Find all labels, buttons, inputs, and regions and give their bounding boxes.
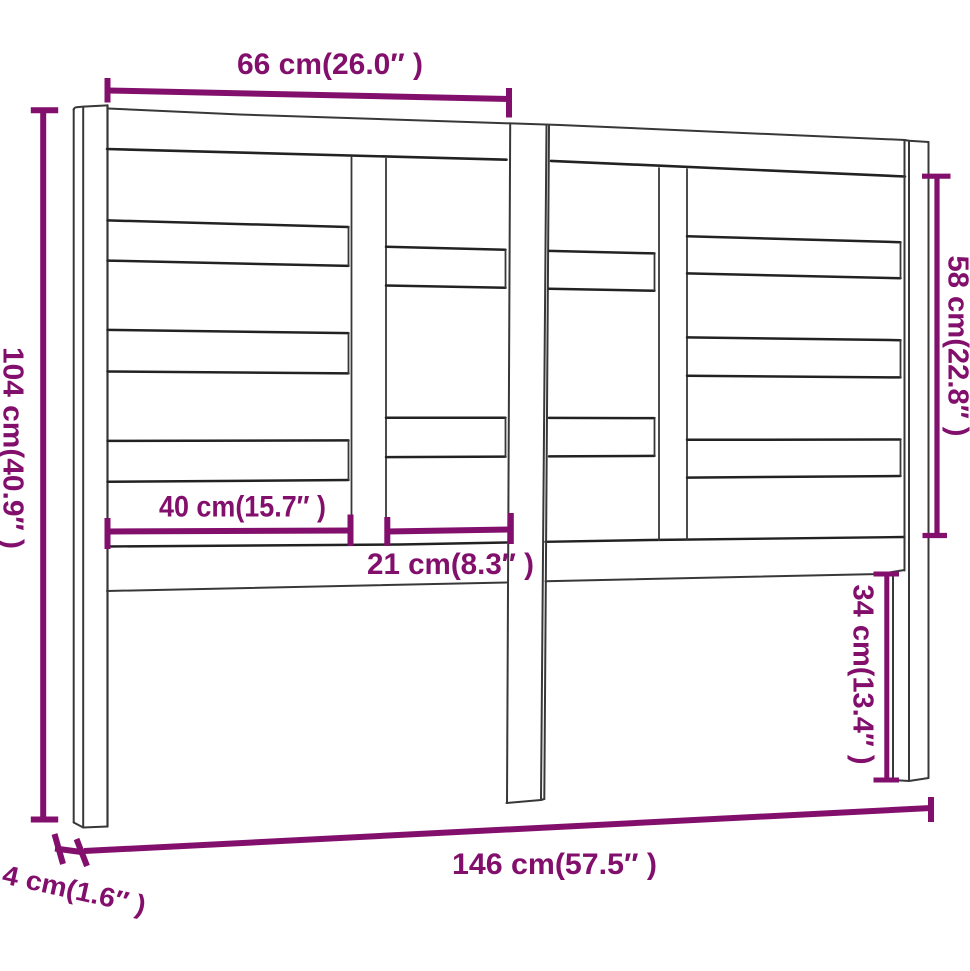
svg-text:21 cm(8.3″ ): 21 cm(8.3″ ) [367,548,534,581]
svg-text:40 cm(15.7″ ): 40 cm(15.7″ ) [159,490,326,523]
svg-text:146 cm(57.5″ ): 146 cm(57.5″ ) [452,848,657,881]
svg-text:104 cm(40.9″ ): 104 cm(40.9″ ) [0,347,29,549]
svg-text:58 cm(22.8″ ): 58 cm(22.8″ ) [942,256,970,437]
svg-text:34 cm(13.4″ ): 34 cm(13.4″ ) [847,585,879,765]
svg-text:66 cm(26.0″ ): 66 cm(26.0″ ) [237,48,423,81]
